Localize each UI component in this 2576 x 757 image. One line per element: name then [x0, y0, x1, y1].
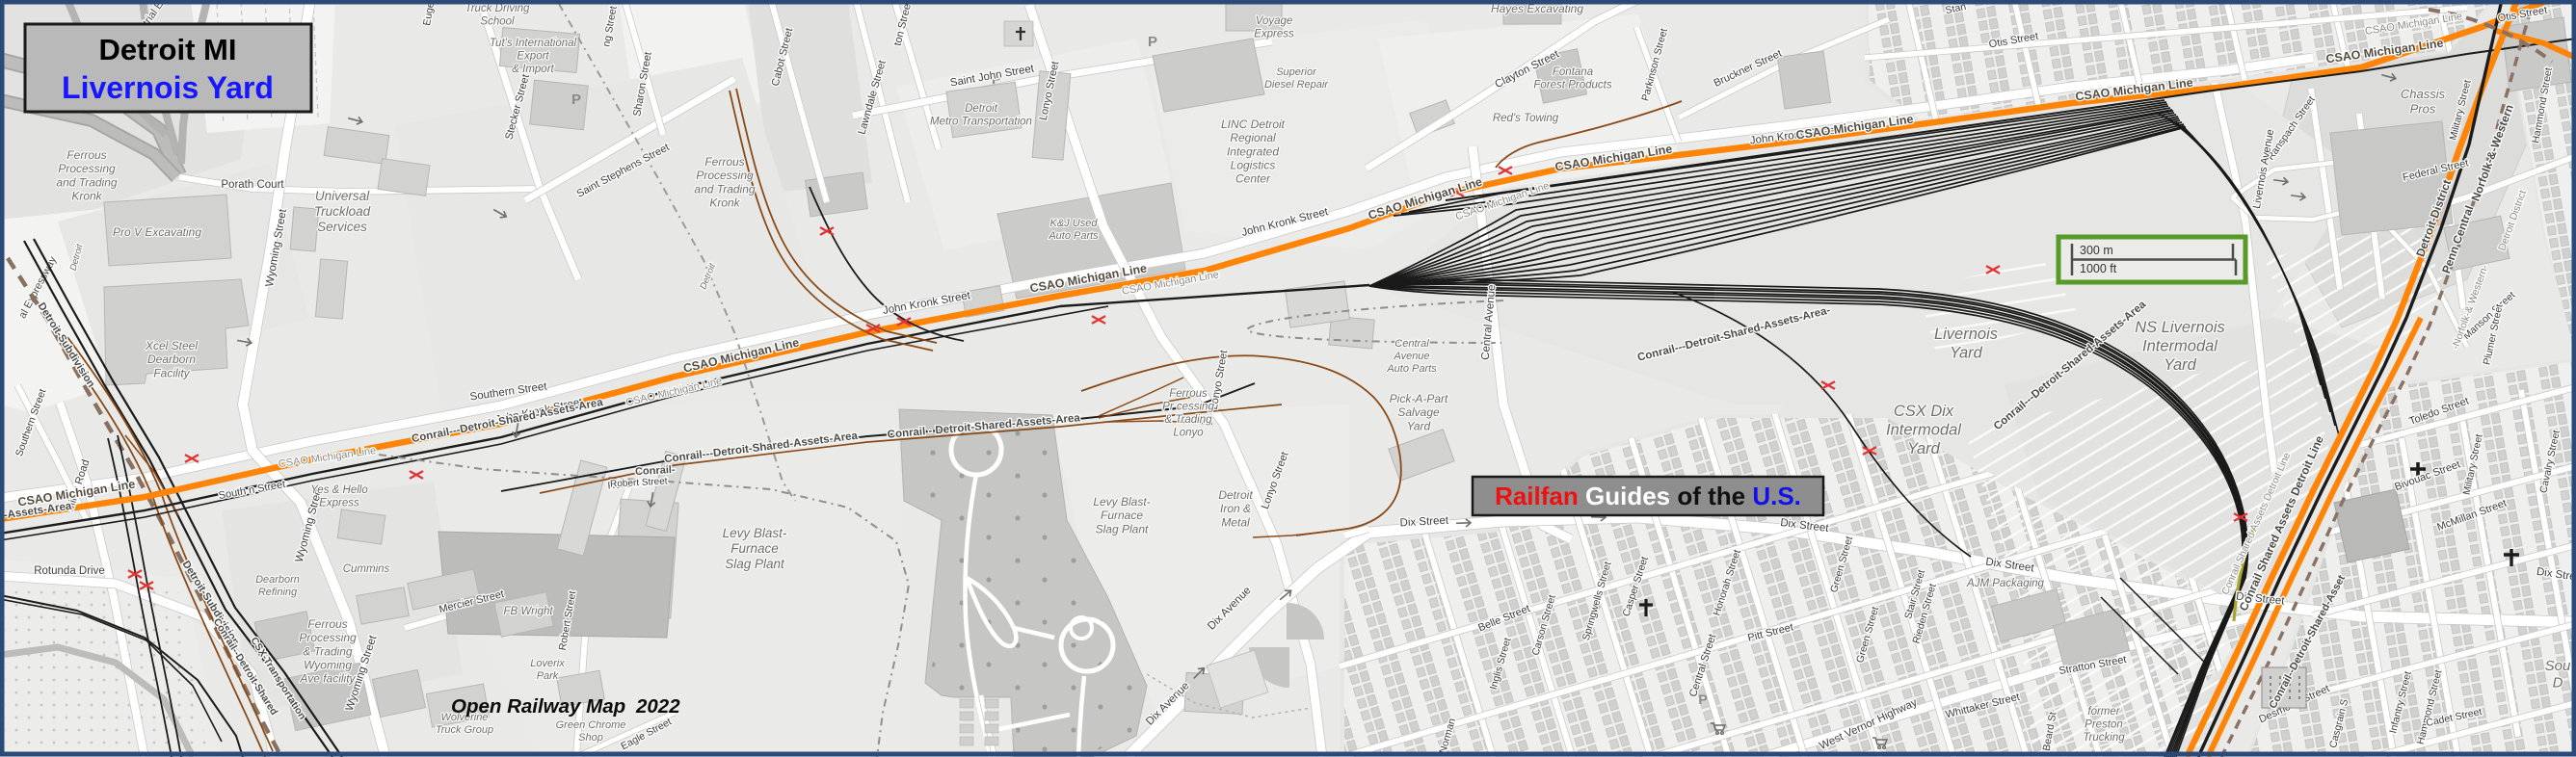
- svg-text:Pr cessing: Pr cessing: [1162, 402, 1214, 413]
- svg-text:Rotunda Drive: Rotunda Drive: [34, 565, 105, 577]
- svg-text:K&J Used: K&J Used: [1050, 218, 1099, 229]
- svg-text:Center: Center: [1235, 172, 1271, 186]
- svg-text:Ferrous: Ferrous: [66, 148, 106, 162]
- svg-text:Yes & Hello: Yes & Hello: [310, 484, 368, 496]
- svg-text:Furnace: Furnace: [730, 541, 779, 556]
- svg-text:Porath Court: Porath Court: [221, 179, 284, 191]
- svg-text:Cummins: Cummins: [343, 563, 390, 575]
- svg-text:Export: Export: [517, 51, 549, 63]
- svg-text:former: former: [2087, 706, 2120, 718]
- svg-text:Facility: Facility: [153, 366, 190, 379]
- svg-text:Yard: Yard: [1950, 344, 1982, 361]
- svg-text:Pick-A-Part: Pick-A-Part: [1390, 392, 1448, 405]
- svg-text:Detroit: Detroit: [1218, 488, 1253, 502]
- svg-text:Tut's International: Tut's International: [490, 38, 577, 49]
- svg-text:Forest Products: Forest Products: [1533, 80, 1611, 91]
- svg-text:Open Railway Map: Open Railway Map: [451, 695, 625, 718]
- svg-text:Red's Towing: Red's Towing: [1493, 113, 1559, 124]
- svg-text:Truckload: Truckload: [314, 204, 371, 219]
- svg-text:Yard: Yard: [1907, 440, 1940, 457]
- svg-text:Superior: Superior: [1276, 66, 1317, 78]
- svg-text:Yard: Yard: [2164, 356, 2196, 374]
- svg-text:Levy Blast-: Levy Blast-: [723, 526, 787, 540]
- svg-text:Detroit: Detroit: [965, 103, 998, 115]
- svg-text:Slag Plant: Slag Plant: [725, 557, 785, 571]
- svg-text:Conrail-: Conrail-: [635, 464, 676, 478]
- svg-text:Truck Driving: Truck Driving: [465, 3, 530, 14]
- svg-text:Ferrous: Ferrous: [1169, 388, 1208, 400]
- svg-text:Railfan Guides of the U.S.: Railfan Guides of the U.S.: [1495, 482, 1801, 510]
- svg-text:300 m: 300 m: [2080, 244, 2113, 257]
- svg-text:Processing: Processing: [299, 631, 357, 644]
- svg-text:Avenue: Avenue: [1393, 351, 1429, 362]
- svg-text:Sou: Sou: [2545, 658, 2571, 674]
- svg-text:Levy Blast-: Levy Blast-: [1093, 495, 1150, 509]
- svg-text:Park: Park: [537, 670, 559, 682]
- svg-text:Trucking: Trucking: [2083, 732, 2125, 744]
- svg-text:LINC Detroit: LINC Detroit: [1221, 117, 1286, 131]
- svg-text:Furnace: Furnace: [1101, 509, 1143, 522]
- svg-text:Integrated: Integrated: [1227, 144, 1279, 158]
- svg-text:Kronk: Kronk: [71, 189, 102, 202]
- svg-text:2022: 2022: [635, 695, 680, 718]
- svg-text:Auto Parts: Auto Parts: [1048, 230, 1099, 242]
- svg-text:Xcel Steel: Xcel Steel: [145, 339, 198, 352]
- svg-text:School: School: [480, 16, 515, 28]
- svg-text:Logistics: Logistics: [1231, 158, 1276, 171]
- svg-text:Pro V Excavating: Pro V Excavating: [113, 225, 201, 239]
- svg-text:Ferrous: Ferrous: [704, 155, 744, 169]
- svg-text:Intermodal: Intermodal: [2142, 337, 2218, 354]
- svg-text:Processing: Processing: [696, 169, 754, 182]
- svg-text:Wyoming: Wyoming: [304, 658, 352, 671]
- svg-text:Express: Express: [1254, 29, 1294, 40]
- svg-text:Voyage: Voyage: [1256, 15, 1293, 27]
- svg-text:Iron &: Iron &: [1220, 502, 1251, 515]
- svg-text:Salvage: Salvage: [1397, 405, 1440, 419]
- svg-text:Diesel Repair: Diesel Repair: [1264, 79, 1329, 91]
- svg-text:Chassis: Chassis: [2401, 87, 2446, 101]
- svg-text:& Import: & Import: [512, 64, 554, 75]
- svg-text:Auto Parts: Auto Parts: [1386, 363, 1437, 375]
- svg-text:Yard: Yard: [1407, 419, 1431, 432]
- svg-text:& Trading: & Trading: [303, 644, 352, 658]
- svg-text:Services: Services: [317, 220, 367, 234]
- svg-text:Kronk: Kronk: [709, 196, 740, 209]
- svg-text:Shop: Shop: [578, 732, 603, 744]
- svg-text:Dearborn: Dearborn: [147, 352, 196, 366]
- svg-text:Universal: Universal: [315, 189, 370, 203]
- svg-text:Ferrous: Ferrous: [307, 617, 347, 631]
- svg-text:Loverix: Loverix: [530, 658, 565, 669]
- svg-text:Livernois Yard: Livernois Yard: [62, 70, 274, 105]
- svg-text:Processing: Processing: [58, 162, 116, 175]
- svg-text:Refining: Refining: [258, 587, 298, 598]
- svg-text:Pros: Pros: [2410, 101, 2436, 116]
- svg-text:Ave facility: Ave facility: [299, 672, 356, 686]
- svg-text:P: P: [1148, 34, 1157, 50]
- svg-text:Metal: Metal: [1221, 515, 1250, 529]
- svg-text:Central: Central: [1394, 338, 1429, 350]
- svg-text:1000 ft: 1000 ft: [2080, 262, 2117, 275]
- svg-text:Regional: Regional: [1230, 131, 1276, 144]
- svg-text:FB Wright: FB Wright: [503, 606, 553, 617]
- svg-text:AJM Packaging: AJM Packaging: [1966, 578, 2045, 589]
- svg-text:D: D: [2553, 675, 2563, 692]
- svg-text:Express: Express: [319, 498, 359, 509]
- svg-text:Intermodal: Intermodal: [1886, 421, 1962, 438]
- svg-text:Fontana: Fontana: [1553, 66, 1593, 78]
- svg-text:Livernois: Livernois: [1934, 326, 1998, 343]
- svg-text:P: P: [571, 91, 581, 108]
- svg-text:and Trading: and Trading: [56, 175, 117, 189]
- svg-text:CSX Dix: CSX Dix: [1894, 403, 1954, 420]
- svg-text:Slag Plant: Slag Plant: [1096, 522, 1149, 535]
- svg-text:NS Livernois: NS Livernois: [2135, 319, 2225, 336]
- svg-text:Metro Transportation: Metro Transportation: [930, 117, 1032, 128]
- svg-text:Truck Group: Truck Group: [436, 724, 493, 736]
- svg-text:Dearborn: Dearborn: [255, 574, 300, 586]
- svg-text:Preston: Preston: [2085, 719, 2123, 731]
- svg-text:Detroit MI: Detroit MI: [99, 33, 237, 66]
- svg-text:& Trading: & Trading: [1164, 414, 1212, 426]
- svg-text:and Trading: and Trading: [694, 182, 755, 196]
- svg-text:Lonyo: Lonyo: [1173, 428, 1204, 439]
- svg-text:Green Chrome: Green Chrome: [556, 719, 626, 731]
